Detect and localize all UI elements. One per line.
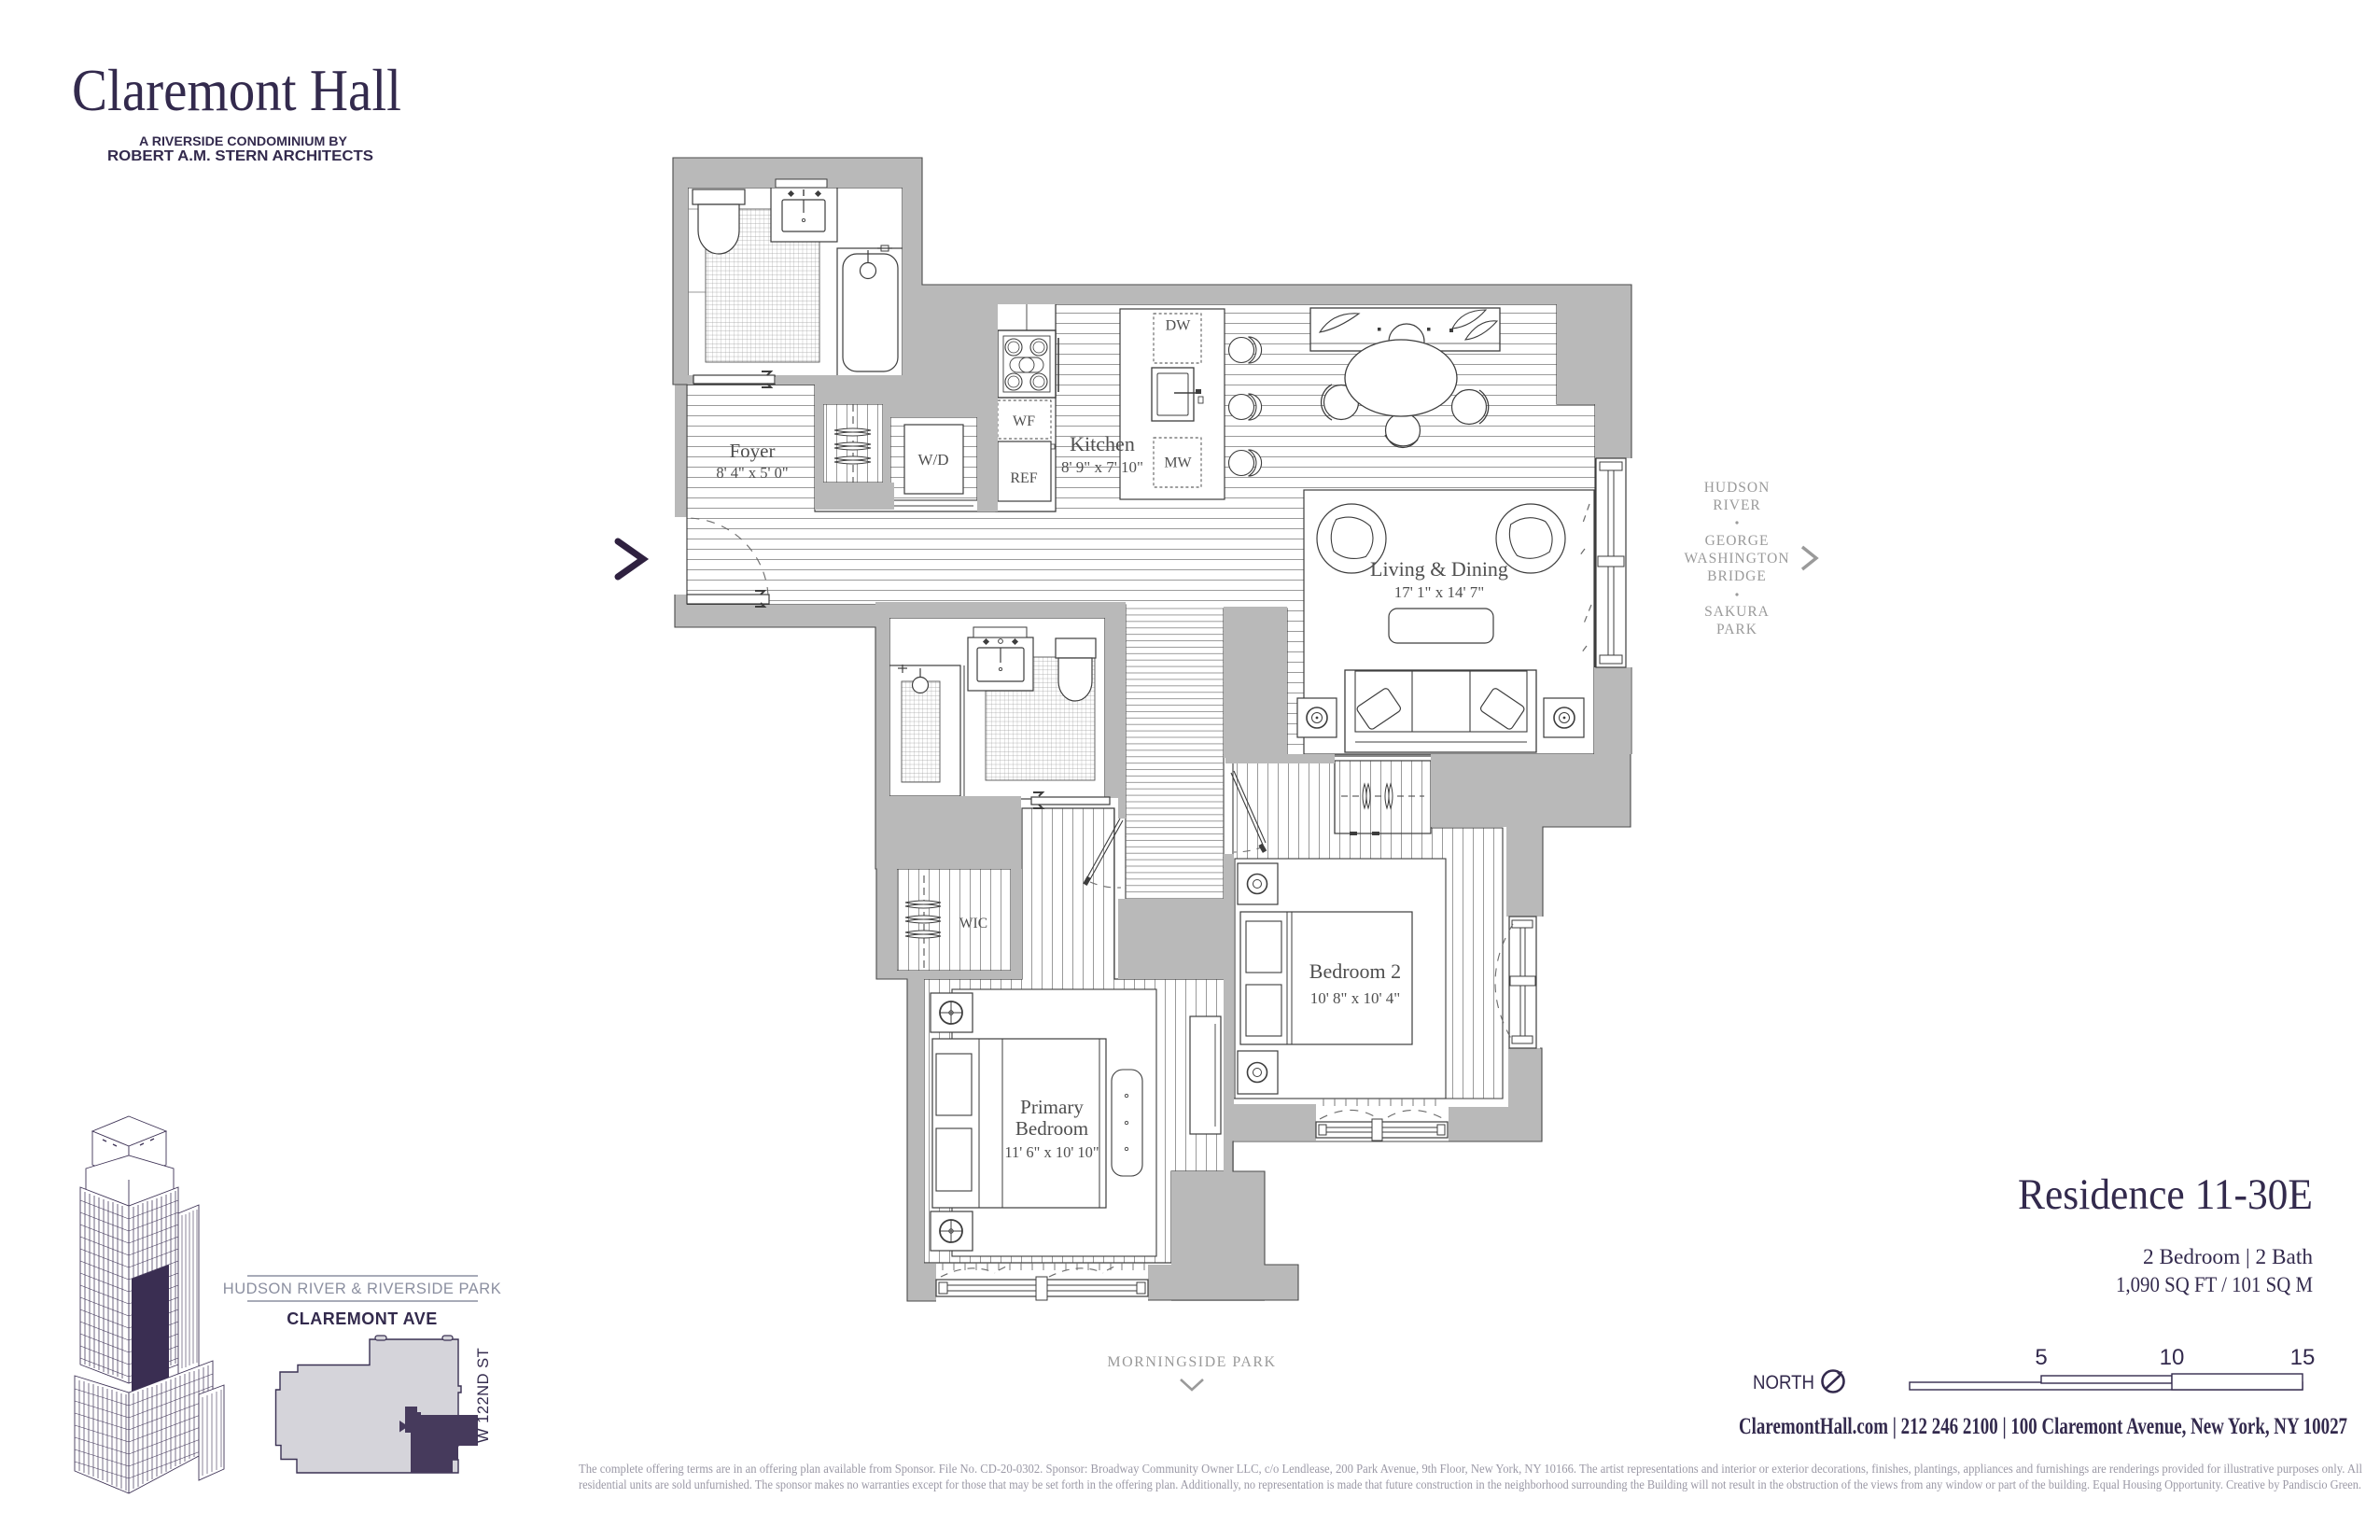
svg-text:Foyer: Foyer [730, 440, 776, 462]
svg-text:15: 15 [2290, 1345, 2316, 1370]
svg-text:10' 8" x 10' 4": 10' 8" x 10' 4" [1310, 989, 1401, 1007]
svg-text:Residence 11-30E: Residence 11-30E [2018, 1170, 2313, 1219]
svg-text:Primary: Primary [1020, 1096, 1084, 1118]
svg-text:GEORGE: GEORGE [1705, 533, 1770, 549]
svg-text:8' 4" x 5' 0": 8' 4" x 5' 0" [716, 464, 788, 482]
svg-text:REF: REF [1010, 470, 1037, 486]
svg-text:2 Bedroom | 2 Bath: 2 Bedroom | 2 Bath [2143, 1245, 2313, 1268]
svg-text:A RIVERSIDE CONDOMINIUM BY: A RIVERSIDE CONDOMINIUM BY [139, 133, 348, 148]
svg-text:WF: WF [1013, 413, 1035, 429]
svg-text:HUDSON RIVER & RIVERSIDE PARK: HUDSON RIVER & RIVERSIDE PARK [223, 1281, 501, 1297]
svg-text:WASHINGTON: WASHINGTON [1684, 551, 1789, 567]
svg-text:W/D: W/D [917, 451, 948, 469]
svg-text:ClaremontHall.com | 212 246 21: ClaremontHall.com | 212 246 2100 | 100 C… [1739, 1414, 2347, 1439]
svg-text:8' 9" x 7' 10": 8' 9" x 7' 10" [1061, 458, 1143, 476]
svg-text:RIVER: RIVER [1713, 497, 1761, 513]
svg-text:WIC: WIC [959, 916, 987, 931]
svg-text:CLAREMONT AVE: CLAREMONT AVE [287, 1309, 438, 1328]
svg-text:The complete offering terms ar: The complete offering terms are in an of… [579, 1462, 2362, 1476]
svg-text:10: 10 [2160, 1345, 2185, 1370]
svg-text:NORTH: NORTH [1753, 1372, 1814, 1393]
svg-text:PARK: PARK [1716, 622, 1757, 637]
svg-text:W 122ND ST: W 122ND ST [475, 1348, 492, 1443]
svg-text:1,090 SQ FT / 101 SQ M: 1,090 SQ FT / 101 SQ M [2116, 1273, 2313, 1296]
svg-text:Bedroom 2: Bedroom 2 [1309, 959, 1401, 983]
svg-text:DW: DW [1166, 318, 1192, 334]
svg-text:ROBERT A.M. STERN ARCHITECTS: ROBERT A.M. STERN ARCHITECTS [107, 148, 373, 164]
svg-text:Bedroom: Bedroom [1015, 1117, 1088, 1140]
svg-text:residential units are sold unf: residential units are sold unfurnished. … [579, 1477, 2361, 1491]
svg-text:Living & Dining: Living & Dining [1370, 557, 1508, 581]
svg-text:17' 1" x 14' 7": 17' 1" x 14' 7" [1394, 583, 1485, 601]
svg-text:11' 6" x 10' 10": 11' 6" x 10' 10" [1004, 1143, 1099, 1161]
svg-text:MORNINGSIDE PARK: MORNINGSIDE PARK [1107, 1354, 1276, 1370]
svg-text:HUDSON: HUDSON [1704, 480, 1771, 496]
svg-text:SAKURA: SAKURA [1704, 604, 1770, 620]
svg-text:Kitchen: Kitchen [1070, 432, 1135, 455]
svg-text:MW: MW [1164, 455, 1192, 471]
svg-text:BRIDGE: BRIDGE [1707, 568, 1767, 584]
svg-text:Claremont Hall: Claremont Hall [72, 58, 401, 123]
svg-text:5: 5 [2035, 1345, 2047, 1370]
